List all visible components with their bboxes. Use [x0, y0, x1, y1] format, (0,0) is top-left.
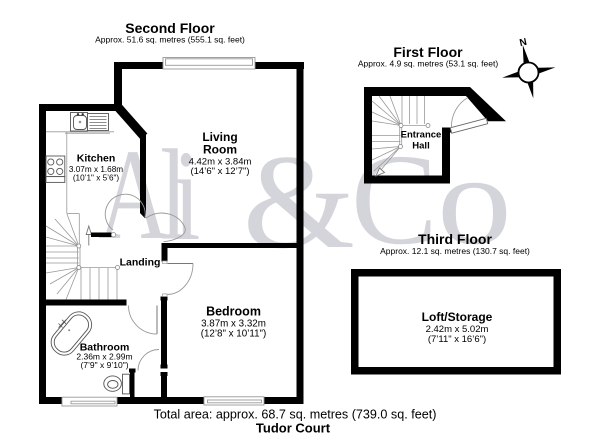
svg-text:Approx. 4.9 sq. metres (53.1 s: Approx. 4.9 sq. metres (53.1 sq. feet)	[358, 59, 498, 69]
svg-text:Hall: Hall	[412, 141, 429, 152]
svg-text:(14’6" x 12’7"): (14’6" x 12’7")	[190, 166, 249, 177]
svg-text:(12’8" x 10’11"): (12’8" x 10’11")	[201, 329, 267, 340]
svg-text:(7’9" x 9’10"): (7’9" x 9’10")	[80, 360, 128, 370]
svg-text:Approx. 51.6 sq. metres (555.1: Approx. 51.6 sq. metres (555.1 sq. feet)	[95, 35, 245, 45]
svg-text:(7’11" x 16’6"): (7’11" x 16’6")	[428, 334, 486, 345]
svg-text:Loft/Storage: Loft/Storage	[422, 310, 493, 324]
svg-text:Room: Room	[203, 143, 237, 157]
svg-text:Bedroom: Bedroom	[206, 305, 261, 319]
svg-text:Tudor Court: Tudor Court	[256, 421, 331, 436]
svg-text:Third Floor: Third Floor	[418, 231, 492, 247]
svg-text:Kitchen: Kitchen	[77, 153, 116, 165]
svg-text:Landing: Landing	[120, 257, 161, 269]
svg-text:Total area: approx. 68.7 sq. m: Total area: approx. 68.7 sq. metres (739…	[154, 408, 437, 422]
svg-text:(10’1" x 5’6"): (10’1" x 5’6")	[73, 174, 120, 183]
svg-text:Entrance: Entrance	[401, 130, 442, 141]
svg-text:A: A	[98, 122, 169, 266]
svg-text:Approx. 12.1 sq. metres (130.7: Approx. 12.1 sq. metres (130.7 sq. feet)	[380, 246, 530, 256]
